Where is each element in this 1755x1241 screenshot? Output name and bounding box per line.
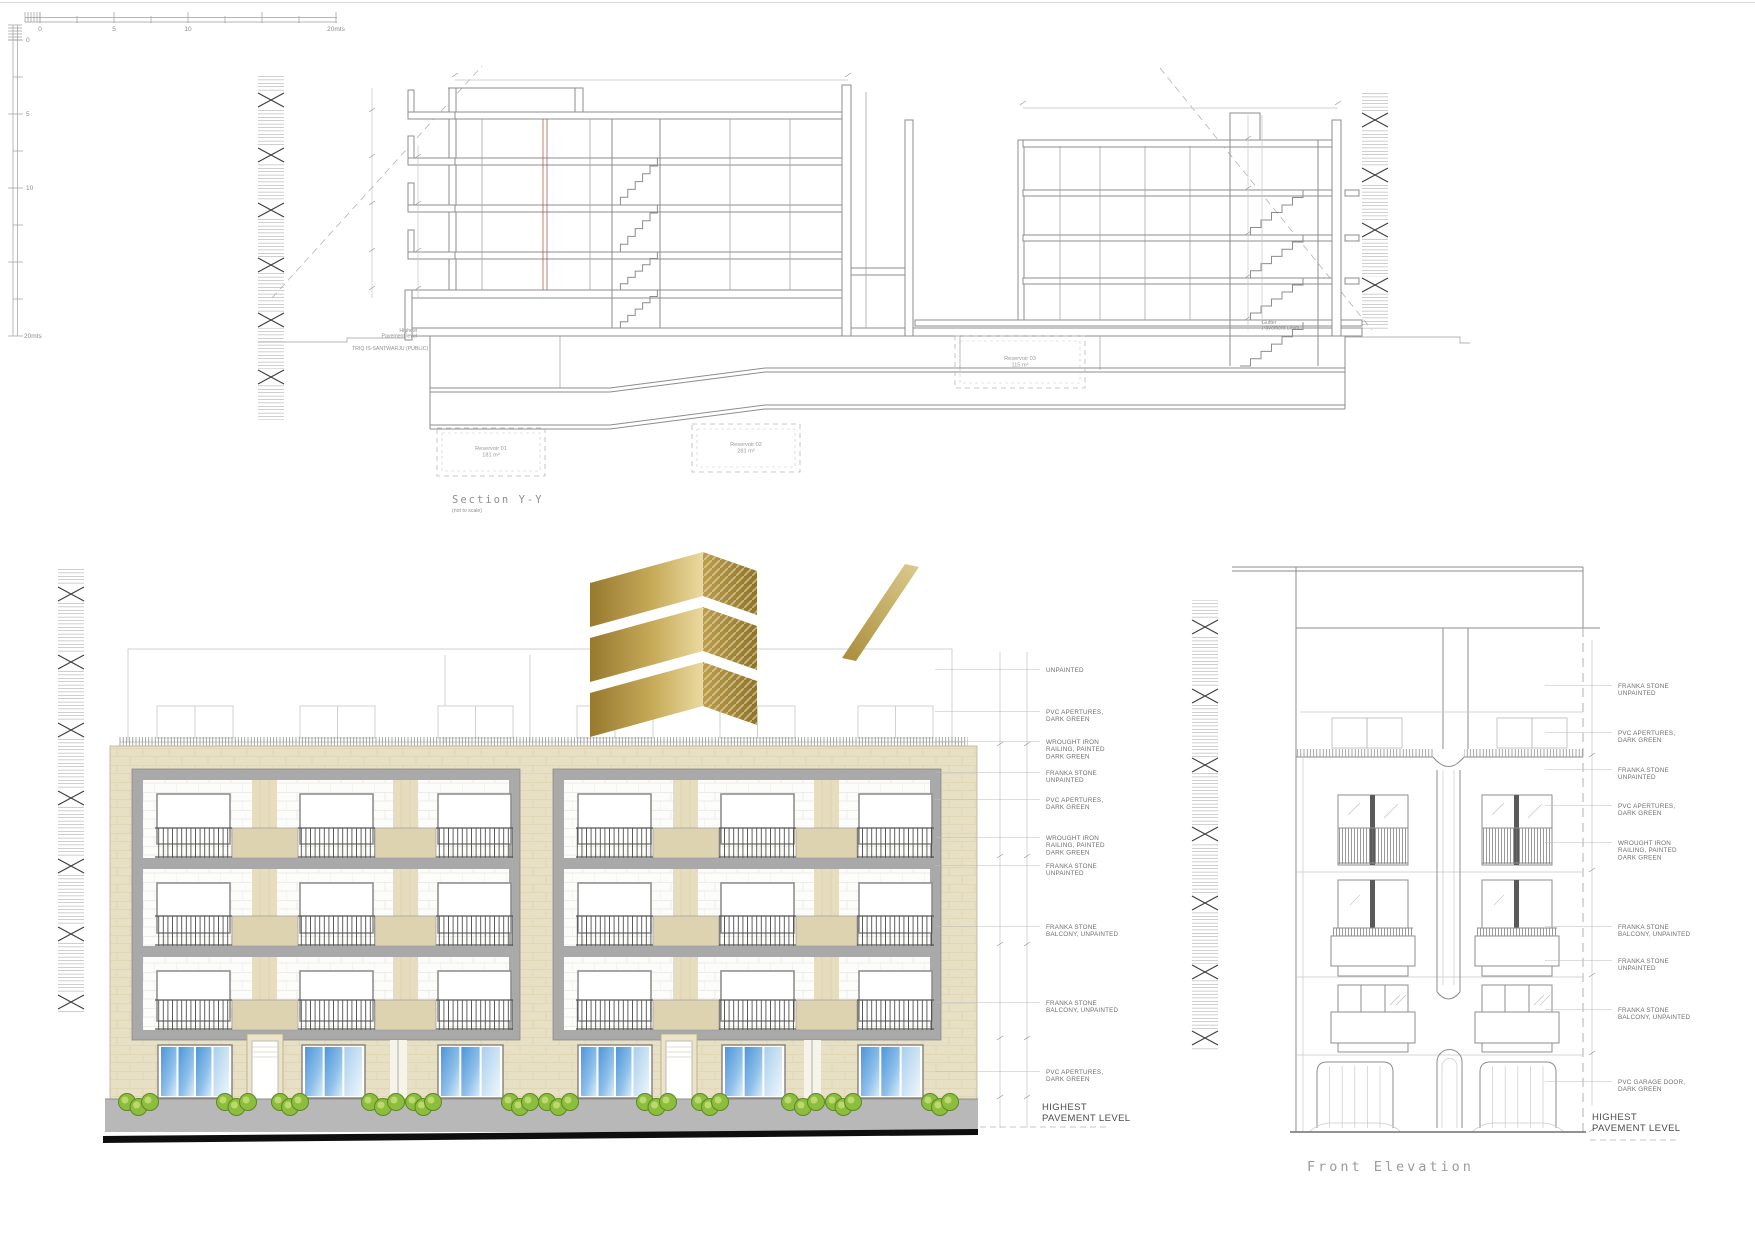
text-label: TRIQ IS-SANTWARJU (PUBLIC)	[352, 346, 428, 352]
text-label: PVC APERTURES,DARK GREEN	[1618, 803, 1675, 817]
text-label: 20mts	[24, 333, 42, 340]
basement-garage	[430, 336, 1345, 429]
iron-railing	[436, 916, 513, 946]
iron-railing	[857, 1000, 934, 1030]
roof-outline	[120, 649, 965, 742]
text-label: 5	[112, 26, 116, 33]
hatch-band	[258, 75, 284, 420]
iron-railing	[1483, 828, 1551, 864]
text-label: HIGHESTPAVEMENT LEVEL	[1042, 1102, 1131, 1124]
iron-railing	[719, 1000, 796, 1030]
section-y-y-drawing	[258, 66, 1470, 429]
text-label: WROUGHT IRONRAILING, PAINTEDDARK GREEN	[1618, 840, 1677, 861]
text-label: FRANKA STONEBALCONY, UNPAINTED	[1046, 1000, 1119, 1014]
text-label: HighestPavement level	[382, 328, 418, 340]
text-label: Reservoir 03115 m²	[1004, 356, 1036, 369]
logo-slash	[842, 564, 919, 661]
front-elevation-title: Front Elevation	[1307, 1159, 1474, 1175]
text-label: Reservoir 02281 m²	[730, 442, 762, 455]
iron-railing	[1339, 828, 1407, 864]
text-label: FRANKA STONEUNPAINTED	[1618, 683, 1669, 697]
section-title: Section Y-Y	[452, 494, 544, 506]
text-label: FRANKA STONEUNPAINTED	[1618, 767, 1669, 781]
text-label: FRANKA STONEUNPAINTED	[1046, 770, 1097, 784]
scale-bars: 051020mts051020mts	[8, 12, 346, 340]
stone-spandrel	[653, 1000, 719, 1030]
iron-railing	[155, 916, 232, 946]
stone-balcony	[1331, 1012, 1415, 1043]
stone-spandrel	[232, 916, 298, 946]
text-label: 20mts	[327, 26, 345, 33]
section-subtitle: (not to scale)	[452, 508, 482, 514]
iron-railing	[298, 916, 375, 946]
text-label: 10	[26, 185, 34, 192]
text-label: FRANKA STONEBALCONY, UNPAINTED	[1046, 924, 1119, 938]
stone-spandrel	[232, 1000, 298, 1030]
architectural-drawing-sheet: 051020mts051020mts	[0, 0, 1755, 1241]
iron-railing	[155, 828, 232, 858]
text-label: 0	[38, 26, 42, 33]
roof-railing	[118, 737, 968, 746]
text-label: Reservoir 01181 m²	[475, 446, 507, 459]
text-label: PVC APERTURES,DARK GREEN	[1046, 709, 1103, 723]
iron-railing	[576, 916, 653, 946]
iron-railing	[857, 916, 934, 946]
stone-spandrel	[796, 828, 857, 858]
stone-balcony	[1331, 936, 1415, 966]
stone-balcony	[1475, 936, 1559, 966]
text-label: PVC APERTURES,DARK GREEN	[1046, 1069, 1103, 1083]
iron-railing	[719, 916, 796, 946]
section-structure	[405, 85, 1362, 340]
iron-railing	[298, 1000, 375, 1030]
text-label: FRANKA STONEBALCONY, UNPAINTED	[1618, 1007, 1691, 1021]
colored-front-elevation	[103, 649, 1030, 1143]
text-label: 10	[184, 26, 192, 33]
iron-railing	[576, 1000, 653, 1030]
stone-spandrel	[375, 828, 436, 858]
stone-spandrel	[796, 916, 857, 946]
text-label: PVC APERTURES,DARK GREEN	[1618, 730, 1675, 744]
text-label: 5	[26, 111, 30, 118]
stone-spandrel	[375, 1000, 436, 1030]
text-label: UNPAINTED	[1046, 667, 1084, 674]
stone-spandrel	[232, 828, 298, 858]
stone-spandrel	[796, 1000, 857, 1030]
text-label: FRANKA STONEBALCONY, UNPAINTED	[1618, 924, 1691, 938]
stone-balcony	[1475, 1012, 1559, 1043]
iron-railing	[436, 828, 513, 858]
text-label: HIGHESTPAVEMENT LEVEL	[1592, 1112, 1681, 1134]
iron-railing	[719, 828, 796, 858]
iron-railing	[155, 1000, 232, 1030]
text-label: FRANKA STONEUNPAINTED	[1046, 863, 1097, 877]
street-line-right	[1345, 337, 1470, 343]
hatch-band	[1362, 93, 1388, 330]
hatch-band	[1192, 600, 1218, 1050]
text-label: FRANKA STONEUNPAINTED	[1618, 958, 1669, 972]
text-label: WROUGHT IRONRAILING, PAINTEDDARK GREEN	[1046, 835, 1105, 856]
line-front-elevation	[1232, 567, 1600, 1132]
stone-spandrel	[653, 828, 719, 858]
iron-railing	[436, 1000, 513, 1030]
text-label: WROUGHT IRONRAILING, PAINTEDDARK GREEN	[1046, 739, 1105, 760]
iron-railing	[576, 828, 653, 858]
stone-spandrel	[375, 916, 436, 946]
iron-railing	[298, 828, 375, 858]
text-label: 0	[26, 37, 30, 44]
hatch-band	[58, 567, 84, 1012]
iron-railing	[857, 828, 934, 858]
text-label: PVC GARAGE DOOR,DARK GREEN	[1618, 1079, 1685, 1093]
text-label: PVC APERTURES,DARK GREEN	[1046, 797, 1103, 811]
sheet-svg: 051020mts051020mts	[0, 0, 1755, 1241]
stone-spandrel	[653, 916, 719, 946]
